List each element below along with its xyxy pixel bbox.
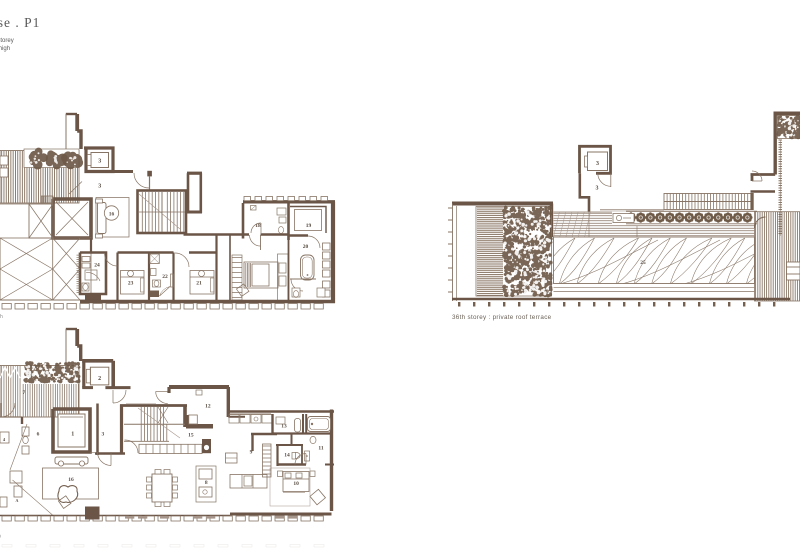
svg-text:35th & 36th storey: 35th & 36th storey [0,38,14,44]
svg-text:36th storey : private roof ter: 36th storey : private roof terrace [452,314,552,321]
svg-text:21: 21 [196,281,202,287]
svg-text:16: 16 [68,477,74,483]
svg-text:16: 16 [109,212,115,218]
svg-text:1: 1 [71,432,74,438]
svg-text:15: 15 [188,432,194,438]
svg-text:24: 24 [94,263,100,269]
svg-text:A: A [16,498,19,503]
svg-text:3: 3 [102,432,105,438]
svg-text:22: 22 [162,274,168,280]
svg-text:25: 25 [640,260,646,266]
svg-text:35th: 35th [0,314,3,320]
svg-text:Penthouse . P1: Penthouse . P1 [0,15,40,30]
svg-text:2: 2 [98,376,101,382]
svg-text:11: 11 [318,446,323,452]
svg-text:6: 6 [37,432,40,438]
svg-text:8: 8 [205,480,208,486]
svg-text:3: 3 [98,184,101,190]
svg-text:7: 7 [23,390,26,396]
svg-text:10: 10 [293,481,299,487]
svg-text:19: 19 [306,223,312,229]
svg-text:double volume high: double volume high [0,46,10,52]
svg-text:13: 13 [281,424,287,430]
svg-text:3: 3 [596,186,599,192]
svg-text:3: 3 [596,161,599,167]
svg-text:14: 14 [284,453,290,459]
svg-text:23: 23 [128,281,134,287]
svg-text:20: 20 [303,244,309,250]
svg-text:12: 12 [205,403,211,409]
svg-text:3: 3 [98,159,101,165]
